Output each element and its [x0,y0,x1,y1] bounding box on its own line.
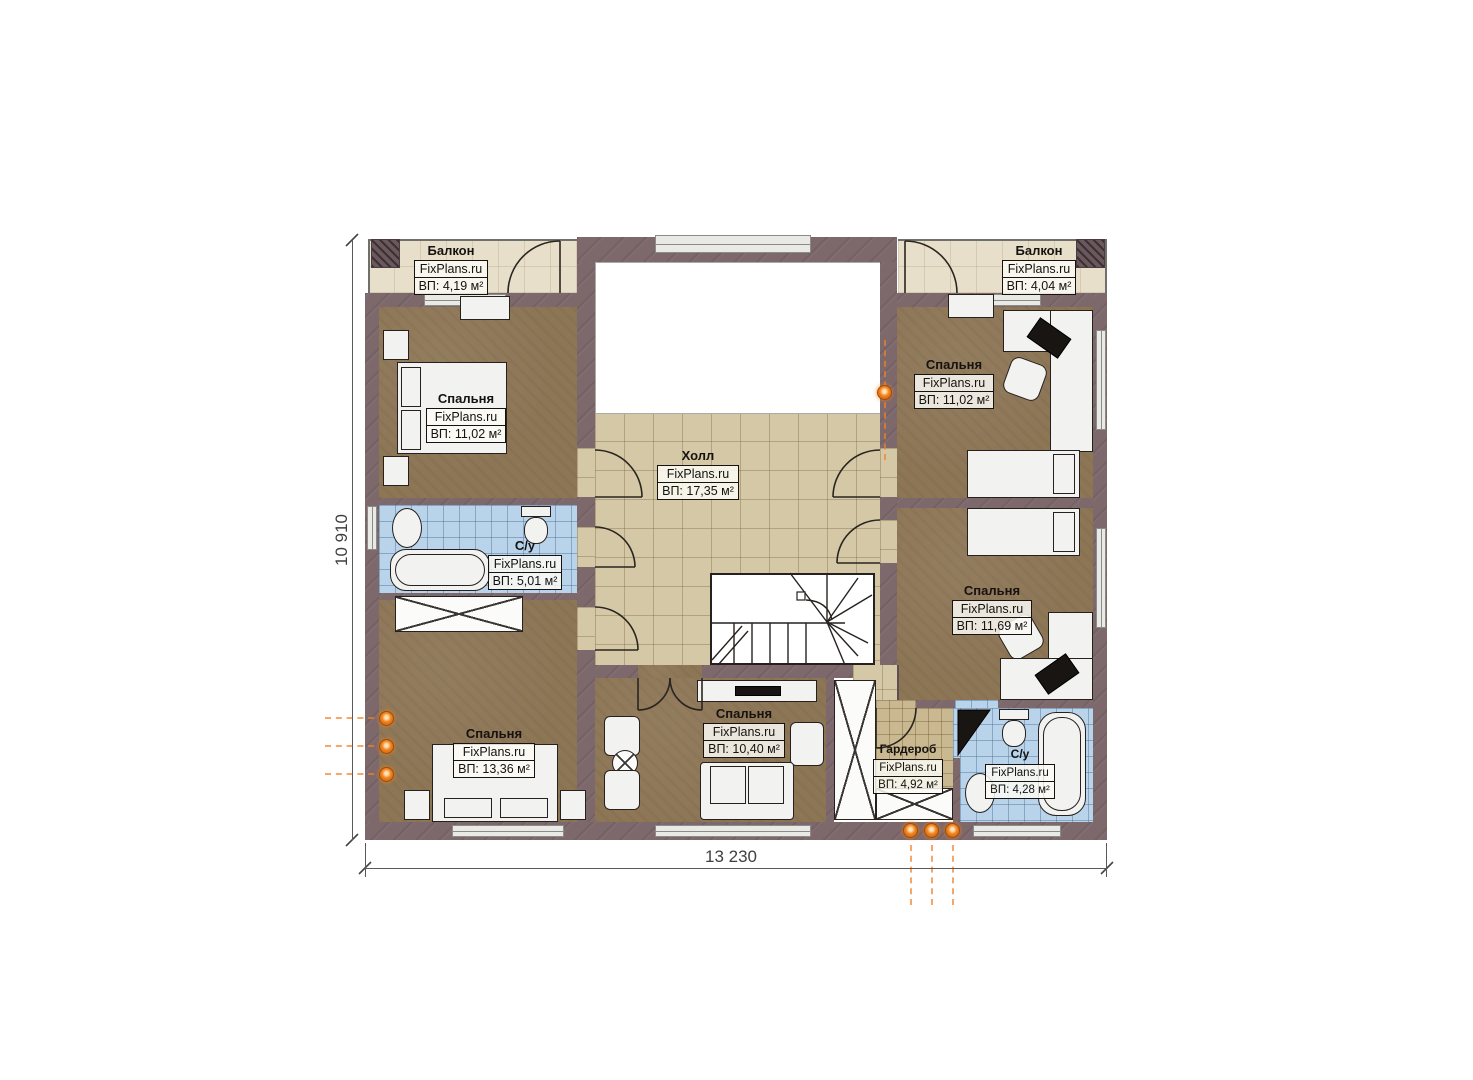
room-area: ВП: 17,35 м² [658,482,738,499]
room-area: ВП: 4,92 м² [874,776,942,793]
room-name: Спальня [420,391,512,406]
wall-hall-bedroom [595,665,638,678]
toilet-bowl [1002,720,1026,747]
room-name: Балкон [405,243,497,258]
wall-interior [577,497,595,527]
room-area: ВП: 13,36 м² [454,760,534,777]
nightstand [404,790,430,820]
wall-bedroom-bc-right [826,678,834,822]
door-gap [638,665,702,678]
brand-watermark: FixPlans.ru [986,765,1054,781]
pillow [401,367,421,407]
room-label-bedroom-bottom-left: Спальня FixPlans.ru ВП: 13,36 м² [448,726,540,778]
door-gap [955,700,998,708]
room-name: Холл [652,448,744,463]
planter-box [948,294,994,318]
balcony-left-column [371,239,400,268]
heating-riser-icon [379,711,394,726]
brand-watermark: FixPlans.ru [658,466,738,482]
toilet-tank [521,506,551,517]
wardrobe-cabinet [395,596,523,632]
dimension-line-left [352,240,353,840]
tv [735,686,781,696]
nightstand [383,330,409,360]
armchair [790,722,824,766]
brand-watermark: FixPlans.ru [1003,261,1076,277]
toilet-tank [999,709,1029,720]
room-label-wardrobe: Гардероб FixPlans.ru ВП: 4,92 м² [868,742,948,794]
riser-pipe-line [931,845,933,905]
sofa-cushion [748,766,784,804]
planter-box [460,296,510,320]
room-name: С/у [980,747,1060,762]
room-name: Спальня [908,357,1000,372]
sink [392,508,422,548]
door-gap [577,527,595,567]
armchair [604,770,640,810]
window-top-center [655,235,811,253]
room-name: Спальня [448,726,540,741]
nightstand [383,456,409,486]
dimension-height-label: 10 910 [332,510,352,570]
wall-interior [880,262,897,448]
room-label-hall: Холл FixPlans.ru ВП: 17,35 м² [652,448,744,500]
heating-riser-icon [903,823,918,838]
door-gap [880,448,897,497]
window-bottom-left [452,825,564,837]
room-label-balcony-right: Балкон FixPlans.ru ВП: 4,04 м² [993,243,1085,295]
corridor-edge [897,665,899,700]
room-name: Гардероб [868,742,948,757]
room-name: Спальня [698,706,790,721]
heating-riser-icon [379,767,394,782]
brand-watermark: FixPlans.ru [915,375,994,391]
wall-interior [577,262,595,448]
window-bottom-center [655,825,811,837]
balcony-right-railing-side [1105,239,1107,293]
brand-watermark: FixPlans.ru [953,601,1032,617]
room-label-bathroom-right: С/у FixPlans.ru ВП: 4,28 м² [980,747,1060,799]
window-right-mid [1096,528,1106,628]
riser-pipe-line [325,745,385,747]
heating-riser-icon [379,739,394,754]
pillow [1053,512,1075,552]
room-label-bathroom-left: С/у FixPlans.ru ВП: 5,01 м² [482,538,568,590]
wall-interior [880,563,897,665]
door-gap [880,520,897,563]
wall-wardrobe-top [916,700,955,708]
wall-interior [577,567,595,607]
room-area: ВП: 4,04 м² [1003,277,1076,294]
dimension-width-label: 13 230 [705,847,757,867]
riser-pipe-line [325,773,385,775]
pillow [1053,454,1075,494]
sofa-cushion [710,766,746,804]
brand-watermark: FixPlans.ru [415,261,488,277]
heating-riser-icon [877,385,892,400]
door-gap [876,700,916,708]
dimension-line-bottom [365,868,1107,869]
wall-bathroom-right-top [998,700,1093,708]
door-gap [953,708,960,758]
window-right-top [1096,330,1106,430]
pillow [444,798,492,818]
riser-pipe-line [952,845,954,905]
room-name: Спальня [946,583,1038,598]
staircase [710,573,875,665]
wall-wardrobe-bath-divider [953,758,960,822]
pillow [401,410,421,450]
room-area: ВП: 4,19 м² [415,277,488,294]
wall-bedrooms-right-divider [897,498,1093,508]
bathtub [390,549,490,591]
heating-riser-icon [924,823,939,838]
dimension-extension [365,843,366,877]
room-area: ВП: 11,02 м² [427,425,506,442]
window-bathroom-left [367,506,377,550]
heating-riser-icon [945,823,960,838]
brand-watermark: FixPlans.ru [427,409,506,425]
room-label-bedroom-mid-right: Спальня FixPlans.ru ВП: 11,69 м² [946,583,1038,635]
wall-left [365,293,379,840]
wall-bathroom-left-top [379,498,577,505]
door-gap [577,607,595,650]
pillow [500,798,548,818]
brand-watermark: FixPlans.ru [704,724,784,740]
wall-interior [880,497,897,520]
room-area: ВП: 5,01 м² [489,572,562,589]
door-gap [577,448,595,497]
window-bottom-right [973,825,1061,837]
brand-watermark: FixPlans.ru [454,744,534,760]
room-area: ВП: 10,40 м² [704,740,784,757]
riser-pipe-line [325,717,385,719]
room-label-bedroom-top-left: Спальня FixPlans.ru ВП: 11,02 м² [420,391,512,443]
balcony-left-railing-side [368,239,370,293]
wall-hall-bedroom [702,665,853,678]
room-label-balcony-left: Балкон FixPlans.ru ВП: 4,19 м² [405,243,497,295]
dimension-extension [1106,843,1107,877]
brand-watermark: FixPlans.ru [874,760,942,776]
room-name: С/у [482,538,568,553]
riser-pipe-line [884,340,886,460]
floor-plan-canvas: Балкон FixPlans.ru ВП: 4,19 м² Балкон Fi… [0,0,1473,1080]
riser-pipe-line [910,845,912,905]
room-label-bedroom-top-right: Спальня FixPlans.ru ВП: 11,02 м² [908,357,1000,409]
room-label-bedroom-bottom-center: Спальня FixPlans.ru ВП: 10,40 м² [698,706,790,758]
room-area: ВП: 11,69 м² [953,617,1032,634]
room-name: Балкон [993,243,1085,258]
void-opening [595,262,882,414]
room-area: ВП: 11,02 м² [915,391,994,408]
nightstand [560,790,586,820]
room-area: ВП: 4,28 м² [986,781,1054,798]
brand-watermark: FixPlans.ru [489,556,562,572]
